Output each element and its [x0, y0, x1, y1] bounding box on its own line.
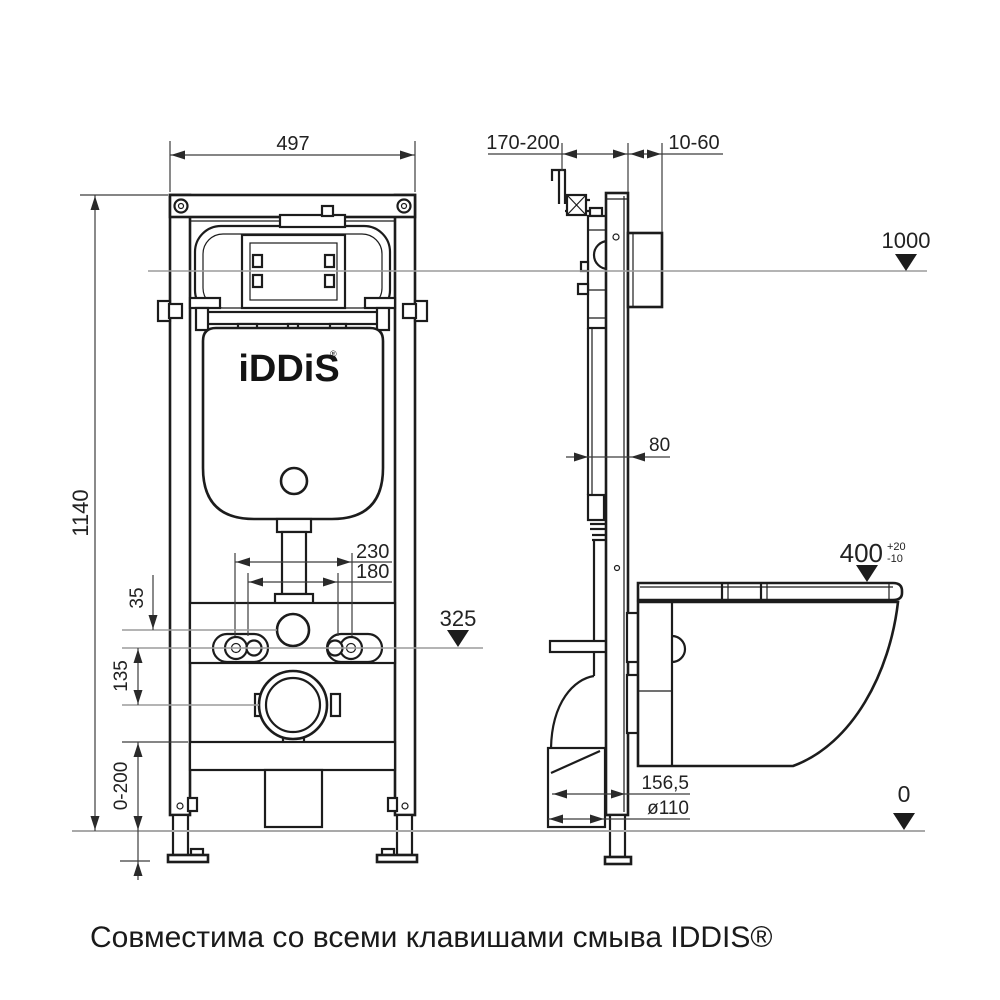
- corner-screw: [175, 200, 188, 213]
- brand-logo: iDDiS: [238, 348, 339, 390]
- level-label-400-plus: +20: [887, 541, 906, 553]
- dim-leg-adjust: 0-200: [111, 762, 132, 811]
- installation-frame-drawing: iDDiS ®: [0, 0, 1000, 1000]
- wall-mount-box: [628, 233, 662, 307]
- dim-drain-offset-135: 135: [111, 660, 132, 692]
- dim-outlet-diameter: ø110: [647, 798, 689, 819]
- caption-compatibility: Совместима со всеми клавишами смыва IDDI…: [90, 921, 773, 954]
- mounting-crossmember: [190, 603, 395, 663]
- dim-bolt-spacing-230: 230: [356, 541, 389, 563]
- seat-lid: [638, 583, 902, 600]
- drain-outlet-box: [548, 748, 605, 827]
- technical-drawing-page: iDDiS ®: [0, 0, 1000, 1000]
- dim-frame-depth: 80: [649, 435, 670, 456]
- level-label-400: 400: [840, 538, 883, 568]
- level-label-325: 325: [440, 606, 477, 631]
- dim-bolt-spacing-180: 180: [356, 561, 389, 583]
- registered-mark: ®: [330, 349, 337, 359]
- dim-depth-range: 170-200: [486, 132, 559, 154]
- flush-bend-hole: [277, 614, 309, 646]
- level-label-400-minus: -10: [887, 553, 903, 565]
- top-mounting-bracket: [158, 195, 427, 330]
- level-label-1000: 1000: [882, 228, 931, 253]
- dim-hole-offset-35: 35: [127, 587, 148, 608]
- cistern: iDDiS ®: [203, 328, 383, 519]
- corner-screw: [398, 200, 411, 213]
- dim-wall-gap: 10-60: [668, 132, 719, 154]
- foot-plate: [377, 855, 417, 862]
- flush-actuator-button: [281, 468, 307, 494]
- dim-front-width: 497: [276, 133, 309, 155]
- level-label-0: 0: [898, 781, 911, 807]
- foot-plate: [605, 857, 631, 864]
- dim-outlet-offset: 156,5: [641, 773, 689, 794]
- support-bracket: [550, 641, 608, 652]
- dim-front-height: 1140: [68, 489, 93, 536]
- foot-plate: [168, 855, 208, 862]
